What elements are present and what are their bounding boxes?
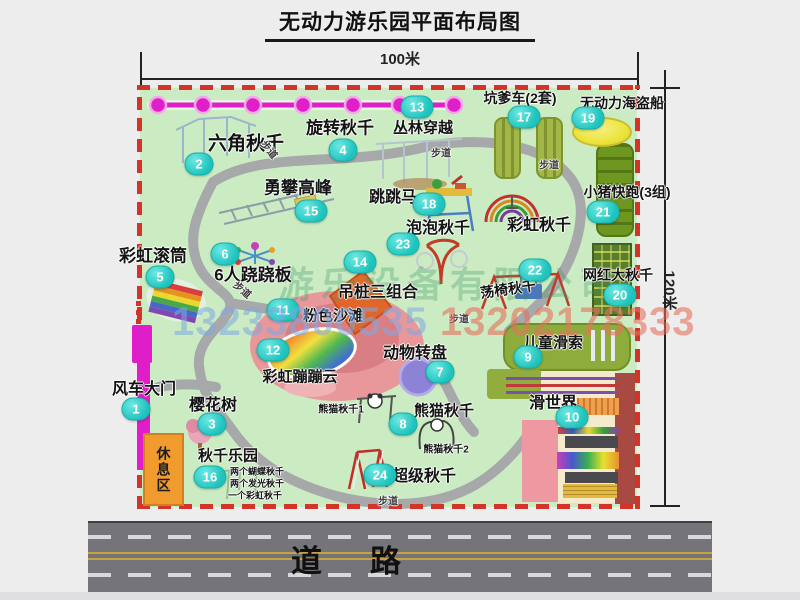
sub-label-2: 熊猫秋千2	[423, 441, 469, 456]
walkway-label-1: 步道	[431, 145, 451, 160]
sub-label-0: 彩虹秋千	[507, 211, 571, 235]
attraction-label-21: 小猪快跑(3组)	[583, 182, 670, 202]
attraction-bubble-8: 8	[389, 413, 418, 436]
attraction-label-5: 彩虹滚筒	[119, 242, 187, 267]
attraction-label-18: 跳跳马	[369, 183, 417, 207]
walkway-label-5: 步道	[378, 493, 398, 508]
attraction-bubble-18: 18	[413, 193, 446, 216]
attraction-label-14: 吊桩三组合	[338, 278, 418, 302]
attraction-bubble-14: 14	[344, 251, 377, 274]
attraction-label-16: 秋千乐园	[198, 445, 258, 466]
attraction-bubble-3: 3	[198, 413, 227, 436]
attraction-bubble-6: 6	[211, 243, 240, 266]
attraction-bubble-22: 22	[519, 259, 552, 282]
attraction-label-15: 勇攀高峰	[264, 174, 332, 199]
attraction-bubble-2: 2	[185, 153, 214, 176]
attraction-bubble-9: 9	[514, 346, 543, 369]
attraction-label-20: 网红大秋千	[583, 265, 653, 285]
attraction-bubble-19: 19	[572, 107, 605, 130]
attraction-bubble-16: 16	[194, 466, 227, 489]
attraction-bubble-23: 23	[387, 233, 420, 256]
attraction-bubble-1: 1	[122, 398, 151, 421]
attraction-bubble-13: 13	[401, 96, 434, 119]
attraction-label-4: 旋转秋千	[306, 114, 374, 139]
attraction-bubble-17: 17	[508, 106, 541, 129]
park-layout-plan: 无动力游乐园平面布局图 100米 120米	[0, 0, 800, 600]
watermark-phone-2: 13202178333	[440, 300, 696, 344]
attraction-label-1: 风车大门	[112, 375, 176, 399]
attraction-bubble-7: 7	[426, 361, 455, 384]
attraction-label-13: 丛林穿越	[393, 117, 453, 138]
watermark-phone: 13233800535 13202178333	[172, 300, 696, 345]
attraction-bubble-24: 24	[364, 464, 397, 487]
attraction-label-3: 樱花树	[189, 391, 237, 415]
attraction-bubble-5: 5	[146, 266, 175, 289]
attraction-bubble-15: 15	[295, 200, 328, 223]
sub-label-5: 一个彩虹秋千	[228, 489, 282, 502]
attraction-label-8: 熊猫秋千	[414, 400, 474, 421]
attraction-label-12: 彩虹蹦蹦云	[262, 366, 337, 387]
sub-label-1: 熊猫秋千1	[318, 401, 364, 416]
attraction-bubble-4: 4	[329, 139, 358, 162]
watermark-phone-1: 13233800535	[172, 300, 428, 344]
attraction-bubble-10: 10	[556, 406, 589, 429]
attraction-bubble-21: 21	[587, 201, 620, 224]
attraction-label-24: 超级秋千	[392, 462, 456, 486]
walkway-label-2: 步道	[539, 157, 559, 172]
